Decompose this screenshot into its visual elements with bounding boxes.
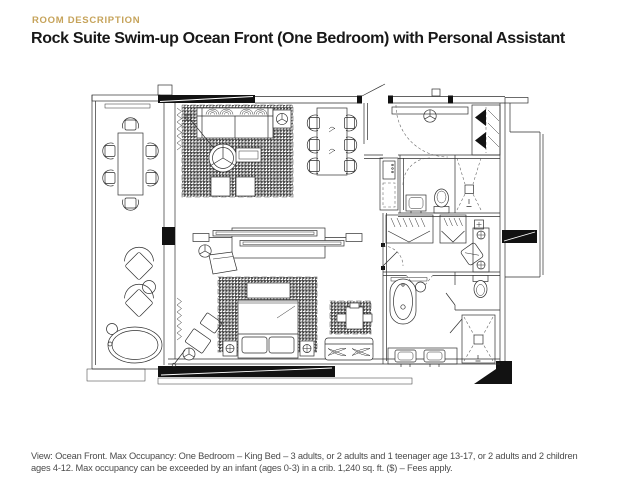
entry-door-leaf (362, 84, 385, 96)
entry-closet (472, 105, 500, 155)
page-title: Rock Suite Swim-up Ocean Front (One Bedr… (31, 30, 565, 48)
dining-area (307, 108, 357, 175)
wall-bottom (158, 359, 500, 384)
room-description-eyebrow: ROOM DESCRIPTION (32, 15, 140, 26)
pillow (242, 337, 267, 353)
terrace (87, 95, 163, 381)
living-room (182, 105, 293, 197)
pillow (269, 337, 294, 353)
lounge-chair (120, 278, 159, 317)
powder-room (398, 155, 500, 217)
bath-stool (416, 282, 426, 292)
entry-hall (364, 103, 500, 159)
bathroom (383, 213, 500, 367)
minibar-counter (380, 158, 398, 210)
curtain (177, 298, 182, 340)
wall-top (158, 84, 505, 104)
dressing-unit (460, 220, 489, 272)
double-vanity (388, 348, 457, 367)
tray-table (236, 148, 261, 162)
plunge-pool (108, 327, 162, 363)
lounge-chair (120, 241, 159, 280)
desk-chair (209, 252, 237, 274)
dining-table (317, 108, 347, 175)
walk-in-closet (381, 215, 489, 272)
curtain (177, 108, 182, 150)
floor-plan-drawing (85, 82, 545, 432)
shower-drain (465, 185, 474, 194)
luggage-bench (325, 338, 373, 360)
bathtub (390, 279, 416, 324)
window-wall (162, 103, 182, 365)
caption-line-1: View: Ocean Front. Max Occupancy: One Be… (31, 450, 626, 462)
swim-up-edge (158, 378, 412, 384)
entry-door-swing (396, 105, 448, 157)
floor-plan (85, 82, 545, 432)
bedroom (172, 277, 373, 367)
powder-toilet (434, 189, 449, 213)
tv-console (193, 228, 362, 274)
powder-door-swing (403, 158, 430, 185)
bar-sink (383, 161, 395, 179)
ottoman (211, 177, 230, 196)
shower-room (455, 155, 481, 213)
ottoman (236, 177, 255, 196)
bed-bench (247, 283, 290, 298)
room-details-caption: View: Ocean Front. Max Occupancy: One Be… (31, 450, 626, 474)
water-closet (446, 272, 500, 310)
caption-line-2: ages 4-12. Max occupancy can be exceeded… (31, 462, 626, 474)
